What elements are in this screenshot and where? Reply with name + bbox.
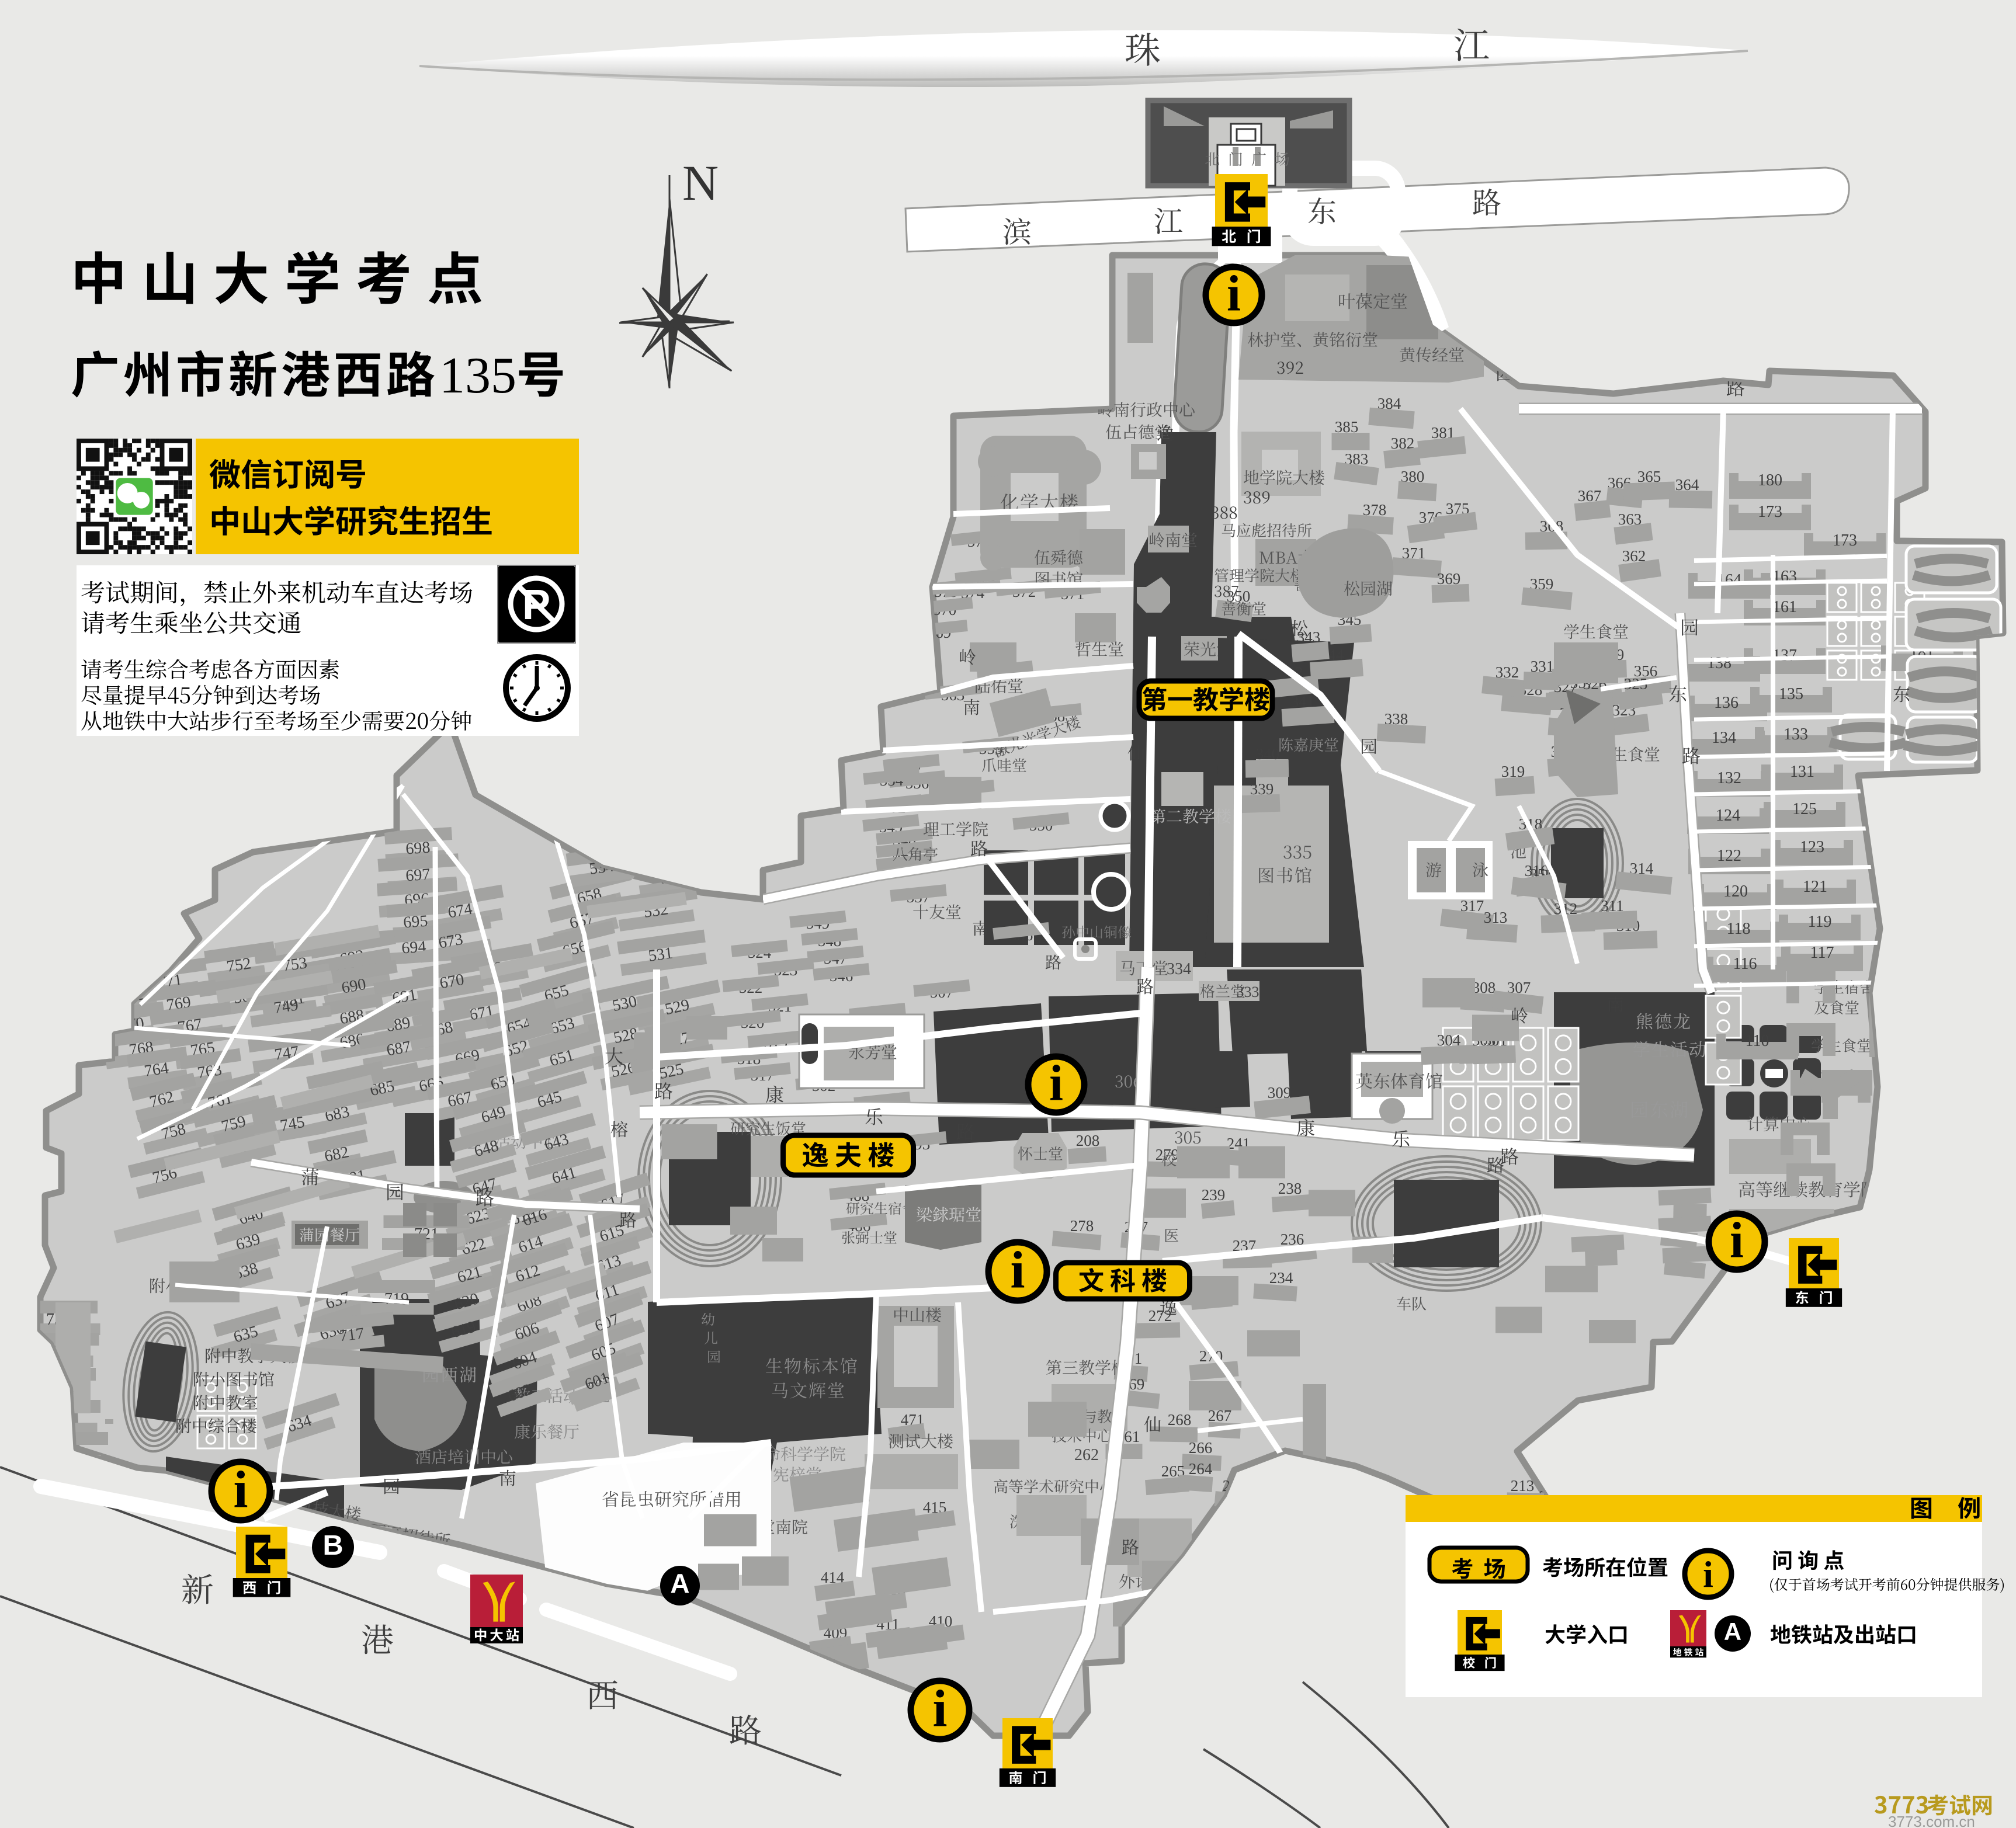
svg-text:i: i [932,1680,947,1738]
svg-text:208: 208 [1076,1132,1100,1149]
svg-text:123: 123 [1800,838,1824,856]
svg-text:116: 116 [1733,955,1757,973]
svg-text:134: 134 [1712,729,1736,747]
svg-text:A: A [670,1568,689,1598]
svg-text:752: 752 [225,954,252,976]
svg-text:135: 135 [439,347,516,404]
svg-text:i: i [1049,1055,1063,1111]
svg-text:279: 279 [1156,1146,1179,1163]
svg-text:N: N [682,155,719,211]
svg-text:764: 764 [143,1059,170,1080]
svg-text:213: 213 [1511,1477,1535,1495]
svg-text:749: 749 [273,996,300,1017]
svg-text:3773.com.cn: 3773.com.cn [1888,1813,1975,1828]
svg-text:266: 266 [1189,1439,1213,1457]
svg-text:i: i [1227,265,1241,321]
svg-text:118: 118 [1727,920,1751,938]
svg-text:262: 262 [1074,1446,1099,1464]
svg-text:133: 133 [1783,725,1808,743]
svg-text:278: 278 [1070,1217,1094,1235]
svg-text:698: 698 [405,839,431,859]
svg-text:135: 135 [1779,685,1803,703]
svg-text:161: 161 [1772,598,1797,616]
svg-text:119: 119 [1808,913,1832,931]
svg-text:121: 121 [1803,878,1827,896]
svg-text:131: 131 [1790,763,1814,781]
svg-text:717: 717 [339,1325,365,1345]
svg-text:264: 264 [1189,1460,1213,1478]
svg-text:173: 173 [1758,503,1782,521]
svg-text:268: 268 [1168,1411,1192,1429]
svg-text:136: 136 [1714,694,1739,712]
svg-text:i: i [1703,1554,1713,1595]
svg-text:124: 124 [1716,807,1740,825]
svg-text:A: A [1724,1618,1741,1645]
svg-text:i: i [1730,1212,1744,1268]
svg-text:180: 180 [1758,471,1782,489]
svg-text:334: 334 [1167,960,1191,978]
svg-text:531: 531 [647,944,674,965]
svg-text:B: B [322,1530,343,1561]
svg-text:272: 272 [1148,1307,1172,1325]
svg-text:137: 137 [1772,647,1797,665]
svg-text:138: 138 [1707,654,1732,672]
svg-text:234: 234 [1269,1269,1293,1287]
svg-text:i: i [233,1461,248,1519]
svg-text:120: 120 [1723,882,1748,901]
svg-text:238: 238 [1278,1180,1302,1197]
svg-text:i: i [1010,1242,1025,1299]
svg-text:117: 117 [1810,944,1834,962]
svg-text:239: 239 [1202,1186,1226,1204]
svg-text:173: 173 [1833,531,1857,550]
svg-text:333: 333 [1237,983,1259,1000]
svg-text:125: 125 [1792,800,1817,818]
svg-text:122: 122 [1717,847,1741,865]
svg-text:110: 110 [1746,1032,1769,1050]
svg-text:132: 132 [1717,769,1741,787]
